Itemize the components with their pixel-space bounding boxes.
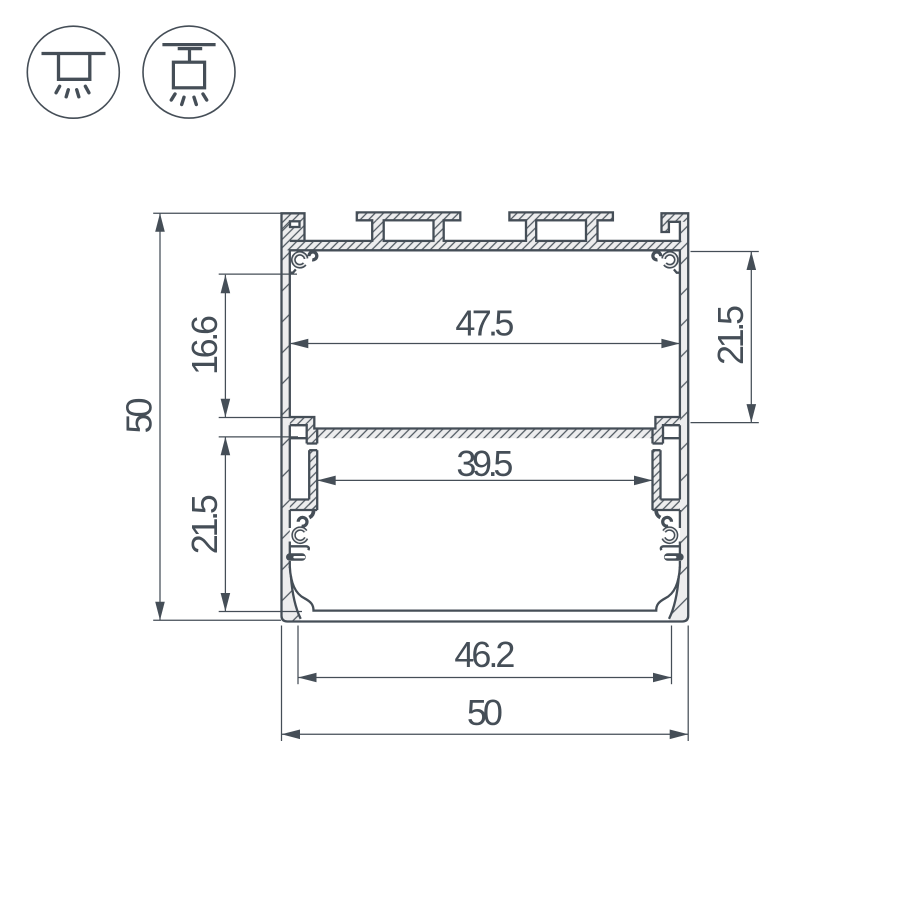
svg-text:39.5: 39.5 — [456, 443, 513, 484]
svg-text:16.6: 16.6 — [184, 315, 225, 375]
svg-text:21.5: 21.5 — [710, 305, 751, 365]
svg-text:50: 50 — [119, 398, 160, 434]
svg-text:21.5: 21.5 — [184, 494, 225, 554]
svg-text:46.2: 46.2 — [454, 634, 515, 675]
svg-text:47.5: 47.5 — [455, 303, 514, 344]
svg-text:50: 50 — [467, 692, 503, 733]
